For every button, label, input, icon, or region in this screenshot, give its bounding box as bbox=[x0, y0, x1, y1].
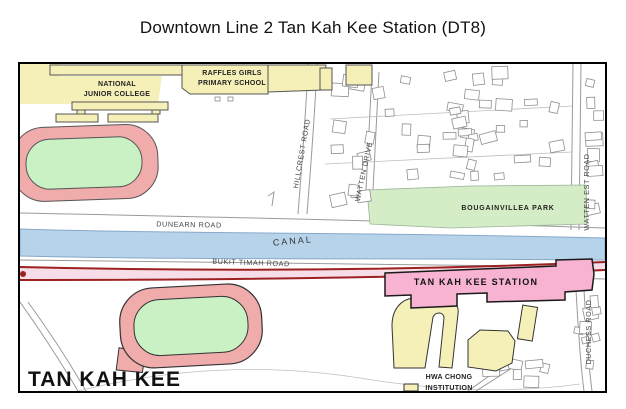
label-njc-line1: NATIONAL bbox=[98, 81, 136, 88]
page-title: Downtown Line 2 Tan Kah Kee Station (DT8… bbox=[0, 18, 626, 38]
label-bougainvillea-park: BOUGAINVILLEA PARK bbox=[461, 205, 554, 212]
label-duchess-road: DUCHESS ROAD bbox=[584, 299, 593, 364]
label-watten-est-road: WATTEN EST ROAD bbox=[582, 153, 591, 230]
label-bukit-timah-road: BUKIT TIMAH ROAD bbox=[212, 257, 290, 269]
label-njc-line2: JUNIOR COLLEGE bbox=[84, 91, 150, 98]
njc-running-track bbox=[20, 123, 159, 202]
small-houses bbox=[215, 97, 233, 101]
canal-shape bbox=[20, 229, 605, 260]
label-tan-kah-kee-station: TAN KAH KEE STATION bbox=[414, 277, 538, 287]
label-tan-kah-kee-area: TAN KAH KEE bbox=[28, 368, 181, 391]
map-graphic: NATIONAL JUNIOR COLLEGE RAFFLES GIRLS PR… bbox=[20, 64, 605, 391]
label-dunearn-road: DUNEARN ROAD bbox=[156, 219, 222, 229]
label-hwa-chong-line1: HWA CHONG bbox=[426, 374, 473, 381]
hwa-chong-running-track bbox=[112, 282, 264, 374]
label-hillcrest-road: HILLCREST ROAD bbox=[291, 118, 312, 189]
map-panel: NATIONAL JUNIOR COLLEGE RAFFLES GIRLS PR… bbox=[18, 62, 607, 393]
label-rgps-line2: PRIMARY SCHOOL bbox=[198, 80, 266, 87]
label-rgps-line1: RAFFLES GIRLS bbox=[202, 70, 262, 77]
label-hwa-chong-line2: INSTITUTION bbox=[425, 385, 472, 391]
